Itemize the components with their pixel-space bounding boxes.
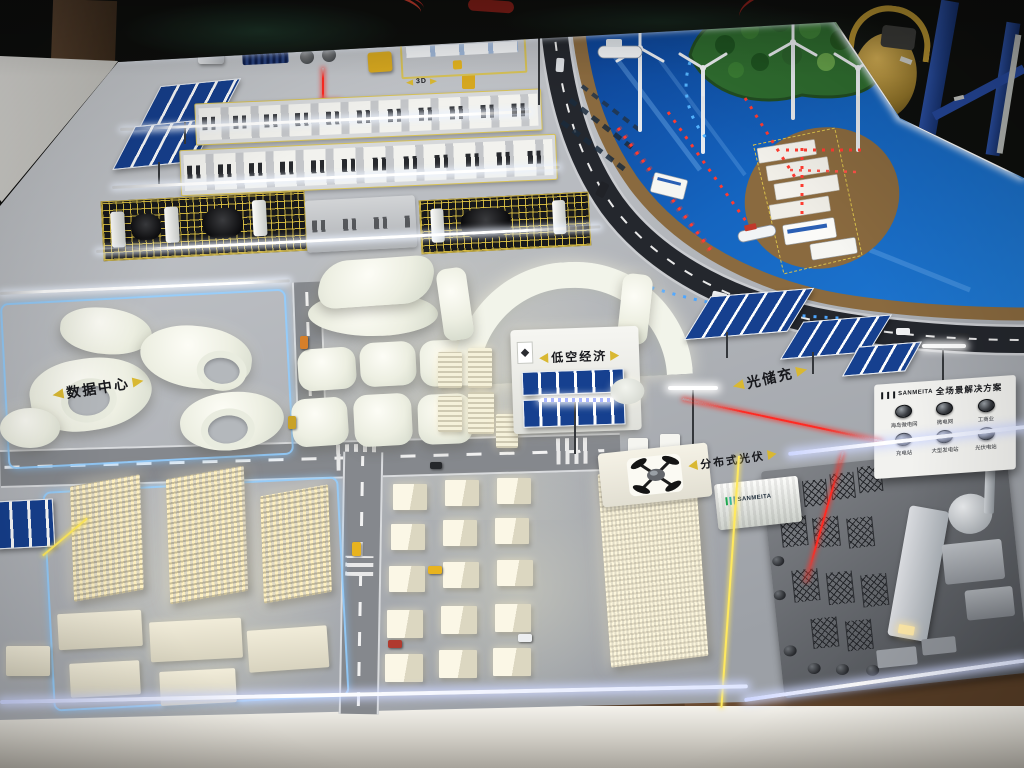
office-tower [260,484,332,603]
house [387,610,423,638]
model-photo-scene: 3D [0,0,1024,768]
plant-block [941,539,1005,585]
label-arrow-icon [132,376,144,388]
small-tank [300,50,314,64]
lae-label-text: 低空经济 [551,347,608,366]
scenario-label: 光伏电站 [975,442,997,452]
lattice-tower [802,479,829,507]
coal-pile [130,213,161,241]
house [495,518,529,544]
lit-doorway [898,624,915,636]
label-arrow-icon [688,460,698,471]
house [497,560,533,586]
led-gantry-bar [540,398,614,402]
scenario-label: 大型发电站 [932,445,959,455]
sign-brand: SANMEITA [898,389,933,397]
scenario-cell: 微电网 [924,400,965,427]
brand-logo-bar-icon [887,391,889,398]
label-arrow-icon [430,78,437,84]
forklift [453,60,462,69]
light-pole [538,9,540,105]
mini-tower [438,396,462,432]
scenario-cell: 工商业 [966,398,1007,425]
label-arrow-icon [610,350,619,360]
conveyor-station [305,195,418,253]
brand-logo-bar-icon [893,391,895,398]
podium-building [69,660,141,698]
scenario-label: 工商业 [978,414,994,423]
knob-icon [937,401,954,415]
office-tower [166,466,248,605]
mini-tower [468,392,494,434]
transformer [783,645,797,657]
container-row [406,41,518,58]
brand-logo-bar-icon [881,392,883,399]
plant-block [964,586,1015,621]
silo [252,200,268,237]
car [518,634,532,642]
house [443,562,479,588]
diamond-logo-sign [517,341,534,364]
facade-solar-panels [522,368,625,396]
transformer [807,662,821,674]
lattice-tower [791,568,820,603]
lae-label: 低空经济 [539,346,620,366]
car [300,336,308,349]
car [388,640,402,648]
house [385,654,423,682]
label-arrow-icon [795,365,808,377]
label-arrow-icon [539,352,548,362]
transformer [772,556,785,567]
hanging-light-bar [922,344,966,348]
house [497,478,531,504]
turbine-hall-building [887,505,949,642]
lattice-tower [846,516,875,549]
label-arrow-icon [406,79,413,85]
scenario-cell: 充电站 [883,431,924,458]
commercial-district [0,470,360,720]
scenario-label: 充电站 [896,448,912,457]
scenario-cell: 海岛微电网 [883,403,924,430]
lattice-tower [860,573,889,608]
data-center-zone [0,288,300,468]
silo [430,208,445,243]
logo-bar-icon [729,497,732,505]
silo [110,211,126,248]
transformer [773,590,786,601]
ground-solar-array [0,498,55,549]
car [430,462,442,469]
zone-label-text: 3D [416,78,427,86]
label-arrow-icon [767,449,777,460]
knob-icon [978,398,995,412]
house [443,520,477,546]
carport-post [726,332,728,358]
rounded-block-building [297,346,358,392]
round-landing-pad [610,378,645,405]
house [389,566,425,592]
house [445,480,479,506]
transformer [835,663,849,675]
carport-post [812,352,814,374]
canopy-post [158,162,160,184]
knob-icon [895,404,912,418]
substation-zone [761,446,1024,698]
arc-wing [435,266,475,341]
car [428,566,442,574]
diamond-icon [521,349,529,357]
yellow-transformer [462,74,475,89]
hanging-light-bar [668,386,718,390]
yellow-transformer [367,51,392,73]
label-arrow-icon [52,389,64,401]
mini-tower [438,352,462,388]
organic-building [0,408,60,448]
battery-container: SANMEITA [714,476,802,531]
logo-bar-icon [725,497,728,505]
podium-building [247,625,330,672]
helipad-roof [597,442,712,507]
rounded-block-building [353,393,414,448]
silo [164,206,180,243]
scenario-label: 海岛微电网 [890,419,917,429]
house [493,648,531,676]
zone-label-3d: 3D [406,77,437,86]
shed [921,636,956,655]
lattice-tower [810,616,839,649]
house [439,650,477,678]
coal-pile [202,207,244,239]
mini-tower [468,348,492,388]
office-tower [70,474,144,602]
gantry-pole [574,402,576,454]
podium-building [57,610,143,650]
podium-building [149,618,243,663]
courtyard-ring [199,406,257,453]
lattice-tower [826,571,855,606]
distillation-column [198,18,224,64]
scenario-label: 微电网 [937,417,953,426]
shed [876,646,918,668]
house [441,606,477,634]
red-wire [322,68,324,102]
container-depot [399,15,528,80]
rounded-block-building [290,396,349,448]
lattice-tower [845,619,874,652]
rounded-block-building [359,341,417,388]
storage-tank [336,23,358,45]
car [288,416,296,429]
machine-windows [312,215,410,232]
coal-yard [419,192,592,255]
industrial-zone: 3D [110,10,590,275]
residential-district [385,478,605,708]
solutions-sign-board: SANMEITA 全场景解决方案 海岛微电网 微电网 工商业 充电站 大型发电站… [874,375,1016,479]
car [352,542,361,556]
podium-building [6,646,50,676]
small-tank [322,48,336,62]
drone-icon [628,451,684,498]
table-leg-wood [51,0,117,65]
house [393,484,427,510]
scenario-knob-grid: 海岛微电网 微电网 工商业 充电站 大型发电站 光伏电站 [874,393,1016,459]
low-altitude-economy-building: 低空经济 [510,326,642,434]
label-arrow-icon [732,379,745,391]
house [391,524,425,550]
house [495,604,531,632]
